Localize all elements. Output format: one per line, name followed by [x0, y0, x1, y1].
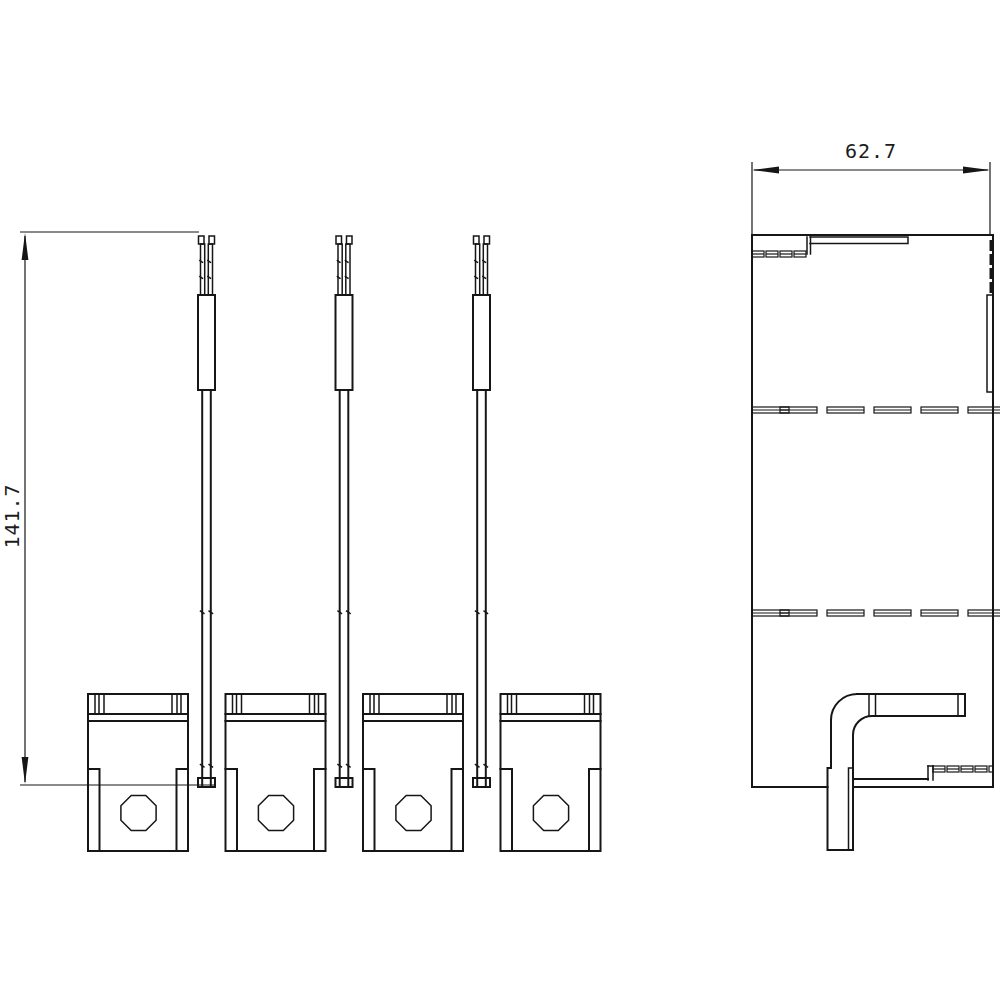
hidden-line-row-upper	[752, 407, 1000, 413]
arrow-down-icon	[22, 757, 29, 784]
clamp-3	[363, 694, 463, 851]
arrow-up-icon	[22, 233, 29, 260]
front-view: 141.7	[0, 232, 601, 851]
clamp-2	[226, 694, 326, 851]
rod-2	[336, 236, 353, 787]
top-tab-detail	[752, 237, 908, 257]
technical-drawing: 141.7 62.7	[0, 0, 1000, 1000]
clamp-1	[88, 694, 188, 851]
rod-3	[473, 236, 490, 787]
side-body-outline	[752, 235, 993, 787]
rod-1	[198, 236, 215, 787]
hidden-line-row-lower	[752, 610, 1000, 616]
drawing-canvas: 141.7 62.7	[0, 0, 1000, 1000]
side-view: 62.7	[752, 139, 1000, 850]
vertical-dimension: 141.7	[0, 232, 215, 785]
clamp-4	[501, 694, 601, 851]
arrow-right-icon	[963, 167, 990, 174]
dimension-label-width: 62.7	[845, 139, 897, 163]
arrow-left-icon	[752, 167, 779, 174]
dimension-label-height: 141.7	[0, 483, 24, 548]
bottom-right-step-detail	[928, 766, 993, 780]
horizontal-dimension: 62.7	[752, 139, 990, 234]
